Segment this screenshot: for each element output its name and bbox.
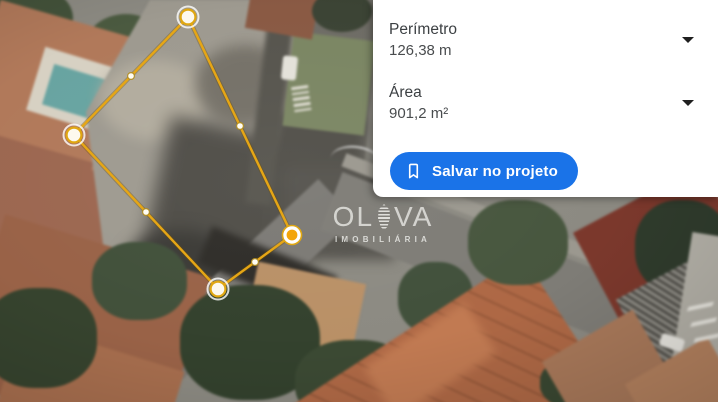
brand-name: OL VA [318, 202, 448, 232]
bookmark-icon [405, 162, 422, 180]
brand-right-text: VA [394, 202, 433, 232]
perimeter-label: Perímetro [389, 20, 457, 39]
chevron-down-icon[interactable] [682, 100, 694, 106]
measurement-panel: Perímetro 126,38 m Área 901,2 m² Salvar … [373, 0, 718, 197]
polygon-vertex-selected-center[interactable] [287, 230, 298, 241]
polygon-vertex-handle[interactable] [211, 282, 226, 297]
brand-left-text: OL [333, 202, 374, 232]
polygon-vertex-handle[interactable] [67, 128, 82, 143]
measurement-outline-shadow [74, 17, 292, 289]
save-to-project-button[interactable]: Salvar no projeto [390, 152, 578, 190]
leaf-icon [378, 204, 390, 230]
perimeter-value: 126,38 m [389, 41, 457, 60]
polygon-midpoint-handle[interactable] [143, 209, 150, 216]
polygon-midpoint-handle[interactable] [128, 73, 135, 80]
polygon-vertex-handle[interactable] [181, 10, 196, 25]
perimeter-row: Perímetro 126,38 m [389, 20, 694, 60]
measure-tool-screen: OL VA IMOBILIÁRIA Perímetro 126,38 m Áre… [0, 0, 718, 402]
polygon-midpoint-handle[interactable] [237, 123, 244, 130]
brand-watermark: OL VA IMOBILIÁRIA [318, 202, 448, 244]
brand-subtitle: IMOBILIÁRIA [318, 235, 448, 244]
area-value: 901,2 m² [389, 104, 448, 123]
save-button-label: Salvar no projeto [432, 163, 558, 180]
polygon-midpoint-handle[interactable] [252, 259, 259, 266]
measurement-outline [74, 17, 292, 289]
area-row: Área 901,2 m² [389, 83, 694, 123]
area-label: Área [389, 83, 448, 102]
chevron-down-icon[interactable] [682, 37, 694, 43]
